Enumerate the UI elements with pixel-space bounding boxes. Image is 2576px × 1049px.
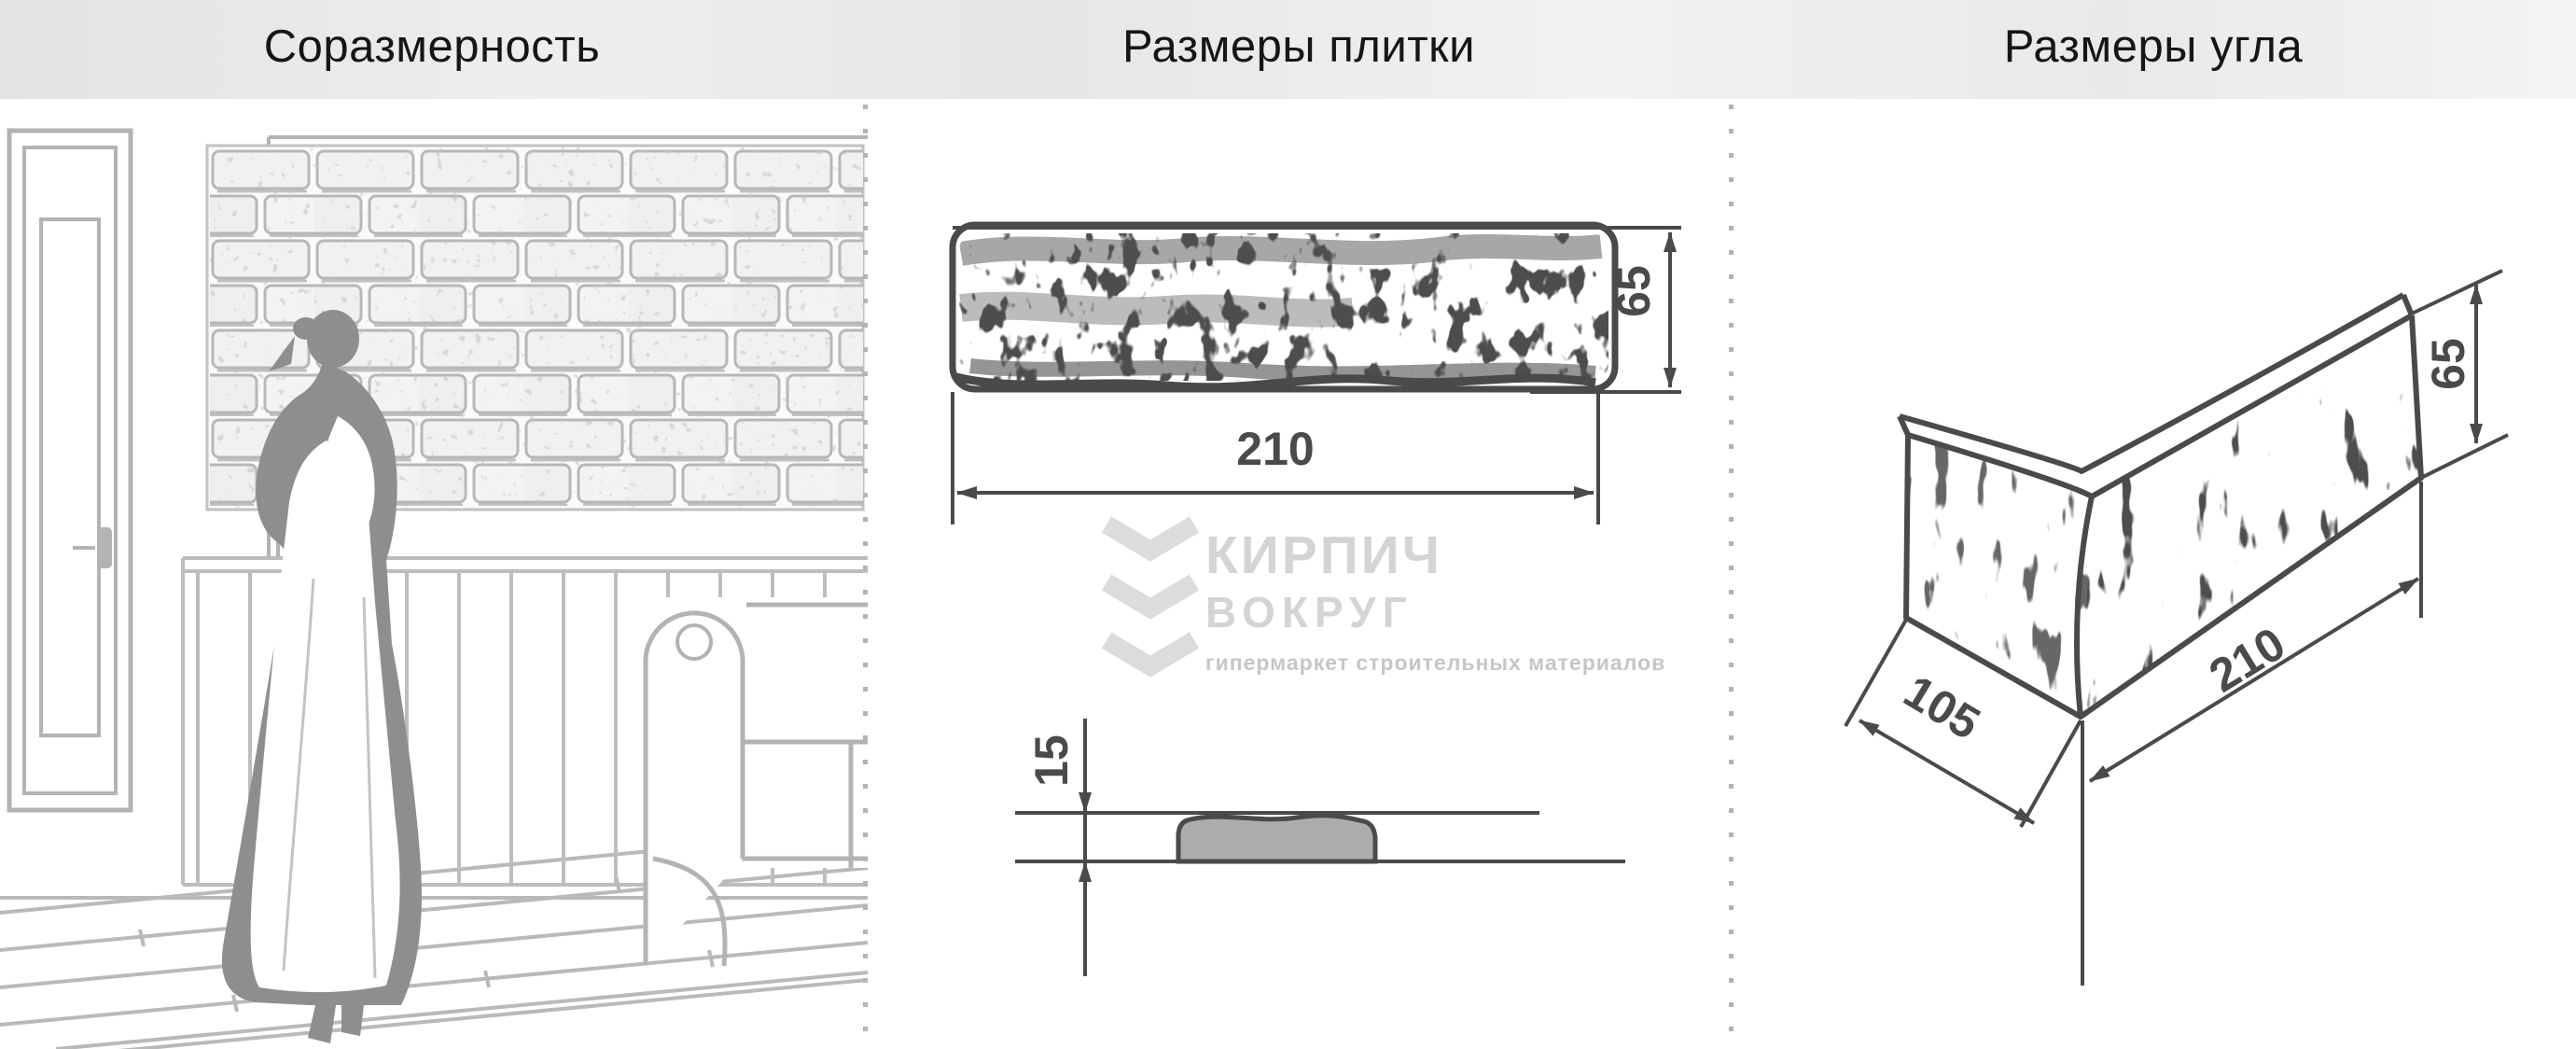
- tile-thickness-drawing: [1015, 719, 1625, 976]
- panel-divider-left: [863, 105, 868, 1049]
- door-handle: [97, 527, 112, 568]
- corner-height-label: 65: [2422, 338, 2474, 390]
- sofa: [646, 597, 868, 966]
- brand-watermark: КИРПИЧ ВОКРУГ гипермаркет строительных м…: [1107, 524, 1665, 675]
- brand-zigzag-icon: [1107, 524, 1194, 666]
- tile-height-label: 65: [1608, 265, 1660, 317]
- tile-width-label: 210: [1236, 423, 1314, 475]
- corner-dimensions-drawing: 105 210 65: [1726, 0, 2576, 1049]
- brand-name-line1: КИРПИЧ: [1205, 525, 1442, 585]
- panel-divider-right: [1729, 105, 1734, 1049]
- door: [9, 131, 131, 810]
- product-dimensions-sheet: Соразмерность Размеры плитки Размеры угл…: [0, 0, 2576, 1049]
- brand-tagline: гипермаркет строительных материалов: [1205, 650, 1665, 675]
- tile-profile-shape: [1178, 816, 1375, 861]
- corner-piece-drawing: [1894, 295, 2435, 728]
- corner-depth-label: 105: [1895, 664, 1988, 749]
- tile-thickness-label: 15: [1025, 734, 1078, 787]
- tile-dimensions-drawing: КИРПИЧ ВОКРУГ гипермаркет строительных м…: [868, 0, 1731, 1049]
- proportion-scene-illustration: [0, 0, 868, 1049]
- corner-length-label: 210: [2200, 617, 2293, 702]
- brand-name-line2: ВОКРУГ: [1205, 588, 1413, 636]
- tile-face-drawing: [953, 225, 1615, 389]
